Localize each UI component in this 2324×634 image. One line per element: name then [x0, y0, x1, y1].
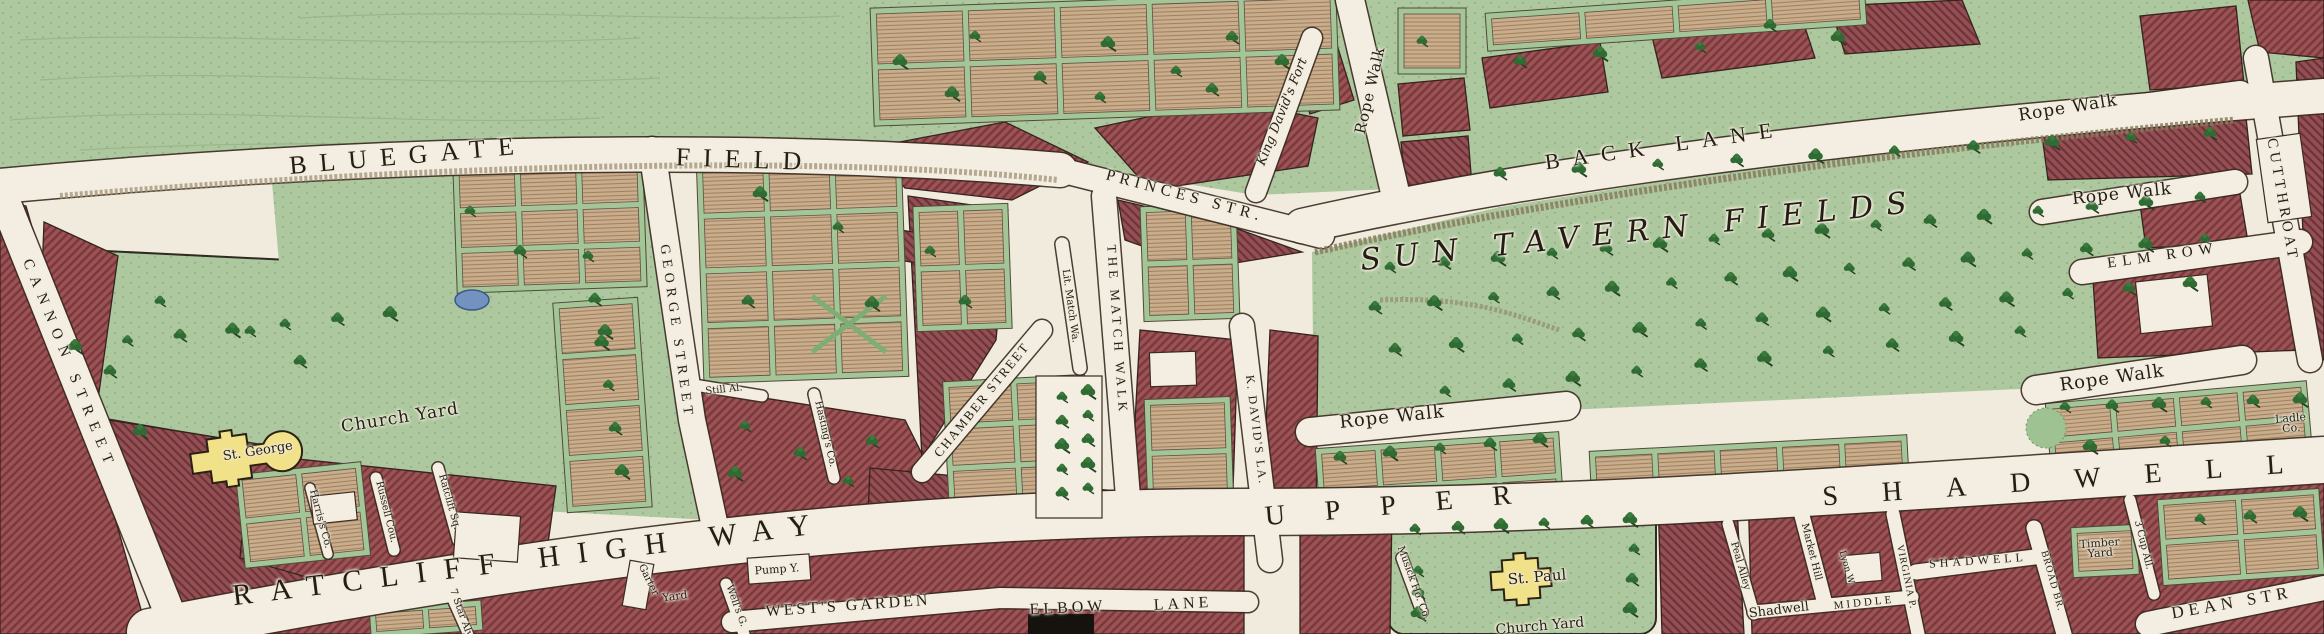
label-back-lane: BACK LANE	[1544, 119, 1787, 173]
label-cannon-street: CANNON STREET	[20, 257, 118, 473]
label-princes-str: PRINCES STR.	[1104, 168, 1266, 225]
label-shadwell-small: Shadwell	[1748, 601, 1810, 621]
label-market-hill: Market Hill	[1799, 522, 1822, 581]
label-seven-star-aly: 7 Star Aly.	[448, 588, 475, 634]
label-lit-match-wa: Lit. Match Wa.	[1060, 269, 1080, 344]
label-virginia-p: VIRGINIA P.	[1895, 544, 1918, 610]
map-canvas: BLUEGATEFIELDPRINCES STR.BACK LANERope W…	[0, 0, 2324, 634]
label-pump-y: Pump Y.	[754, 563, 799, 577]
label-peal-alley: Peal Alley	[1729, 541, 1752, 591]
label-rope-walk-vertical: Rope Walk	[1353, 45, 1387, 135]
label-lyon-w: Lyon W.	[1837, 550, 1855, 587]
label-church-yard: Church Yard	[340, 401, 460, 436]
label-russell-cou: Russell Cou.	[374, 480, 398, 543]
label-still-al: Still Al.	[705, 383, 743, 396]
label-bluegate: BLUEGATE	[288, 133, 528, 178]
label-rope-walk-mid: Rope Walk	[2071, 181, 2172, 208]
label-musick-ho-co: Musick Ho. Co.	[1395, 545, 1430, 621]
label-yard: Yard	[662, 590, 688, 604]
label-cutthroat: CUTTHROAT	[2264, 137, 2300, 263]
label-middle: MIDDLE	[1833, 595, 1895, 612]
label-george-street: GEORGE STREET	[657, 244, 695, 421]
label-upper: UPPER	[1264, 479, 1552, 531]
label-rope-walk-right: Rope Walk	[2059, 362, 2166, 394]
label-elm-row: ELM ROW	[2106, 241, 2219, 271]
label-the-match-walk: THE MATCH WALK	[1105, 244, 1129, 415]
label-ladle-co: Ladle Co.	[2267, 412, 2315, 437]
label-st-paul: St. Paul	[1507, 567, 1567, 586]
label-st-george: St. George	[222, 440, 294, 463]
label-harriss-co: Harris's Co.	[308, 489, 333, 550]
label-dean-str: DEAN STR	[2170, 584, 2294, 621]
label-ratclift-sq: Ratclift Sq.	[437, 473, 462, 530]
label-hastings-co: Hasting's Co.	[813, 400, 837, 468]
label-lane: LANE	[1153, 595, 1212, 613]
label-field: FIELD	[675, 145, 814, 175]
label-wests-garden: WEST'S GARDEN	[765, 593, 931, 620]
label-shadwell-church-yard: Church Yard	[1495, 617, 1585, 634]
label-broad-br: BROAD BR.	[2039, 550, 2065, 613]
label-garter: Garter	[636, 563, 659, 597]
label-rope-walk-center: Rope Walk	[1339, 403, 1446, 431]
label-rope-walk-top: Rope Walk	[2017, 92, 2119, 124]
label-sun-tavern-fields: SUN TAVERN FIELDS	[1359, 188, 1921, 275]
label-elbow: ELBOW	[1029, 598, 1107, 617]
map-labels: BLUEGATEFIELDPRINCES STR.BACK LANERope W…	[0, 0, 2324, 634]
label-shadwell-street: SHADWELL	[1929, 552, 2028, 570]
label-chamber-street: CHAMBER STREET	[932, 340, 1032, 459]
label-timber-yard: Timber Yard	[2072, 537, 2127, 562]
label-king-davids-fort: King David's Fort	[1256, 57, 1310, 168]
label-shadwell-big: SHADWELL	[1822, 449, 2324, 511]
label-three-cup-all: 3 Cup All.	[2132, 520, 2153, 571]
label-k-davids-la: K. DAVID'S LA.	[1244, 374, 1269, 485]
label-wells-g: Well's G.	[724, 584, 748, 628]
